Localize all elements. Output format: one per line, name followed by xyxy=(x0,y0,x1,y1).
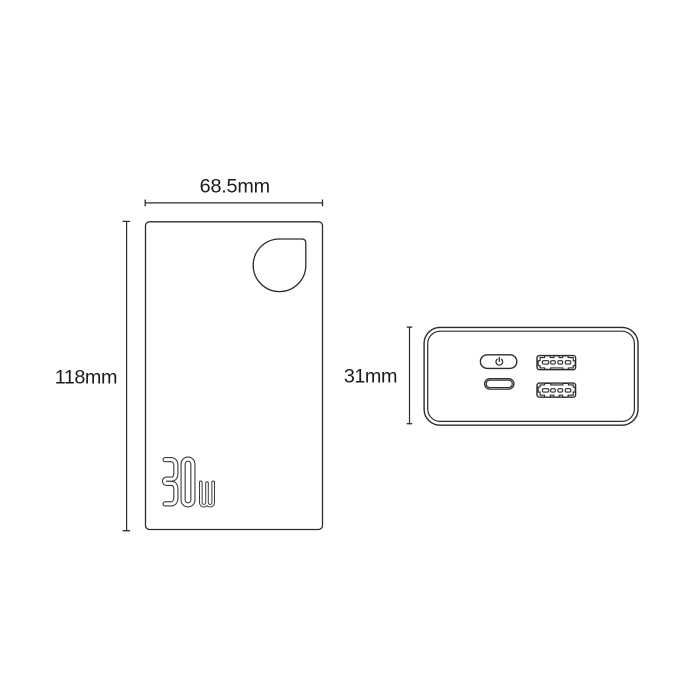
svg-text:31mm: 31mm xyxy=(344,366,397,388)
svg-text:118mm: 118mm xyxy=(55,366,117,388)
svg-text:68.5mm: 68.5mm xyxy=(200,176,270,198)
